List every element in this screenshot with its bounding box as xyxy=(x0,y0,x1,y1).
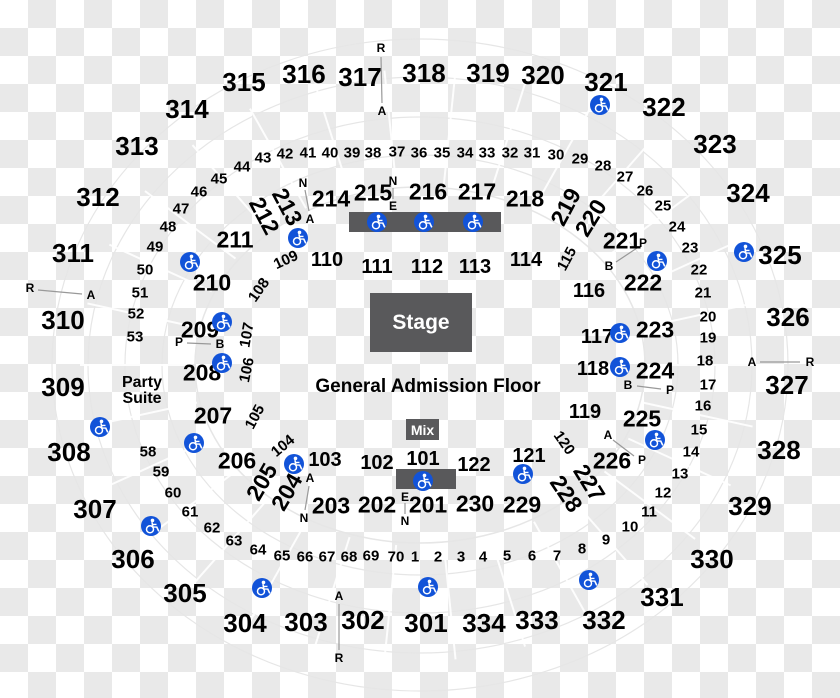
row-number-35: 35 xyxy=(434,146,451,161)
row-number-37: 37 xyxy=(389,145,406,160)
row-number-27: 27 xyxy=(617,170,634,185)
section-300-325[interactable]: 325 xyxy=(758,242,801,268)
section-300-308[interactable]: 308 xyxy=(47,439,90,465)
row-number-38: 38 xyxy=(365,146,382,161)
row-extent-letter-R: R xyxy=(377,42,386,54)
row-number-36: 36 xyxy=(411,146,428,161)
row-number-3: 3 xyxy=(457,550,465,565)
section-300-316[interactable]: 316 xyxy=(282,61,325,87)
general-admission-floor-label: General Admission Floor xyxy=(315,376,540,398)
section-200-203[interactable]: 203 xyxy=(312,495,350,518)
row-number-48: 48 xyxy=(160,220,177,235)
row-number-60: 60 xyxy=(165,486,182,501)
wheelchair-accessible-icon[interactable] xyxy=(180,252,200,272)
row-number-59: 59 xyxy=(153,465,170,480)
row-number-44: 44 xyxy=(234,160,251,175)
wheelchair-accessible-icon[interactable] xyxy=(590,95,610,115)
row-extent-letter-P: P xyxy=(638,454,646,466)
section-200-224[interactable]: 224 xyxy=(636,360,674,383)
mix-label: Mix xyxy=(411,423,434,437)
wheelchair-accessible-icon[interactable] xyxy=(418,577,438,597)
wheelchair-accessible-icon[interactable] xyxy=(610,323,630,343)
row-number-9: 9 xyxy=(602,533,610,548)
row-number-30: 30 xyxy=(548,148,565,163)
wheelchair-accessible-icon[interactable] xyxy=(414,212,434,232)
section-100-101[interactable]: 101 xyxy=(406,449,439,469)
row-number-46: 46 xyxy=(191,185,208,200)
row-extent-letter-A: A xyxy=(748,356,757,368)
section-200-230[interactable]: 230 xyxy=(456,493,494,516)
section-300-318[interactable]: 318 xyxy=(402,60,445,86)
row-number-8: 8 xyxy=(578,542,586,557)
section-100-114[interactable]: 114 xyxy=(510,250,542,270)
row-number-47: 47 xyxy=(173,202,190,217)
row-number-51: 51 xyxy=(132,286,149,301)
section-100-113[interactable]: 113 xyxy=(459,257,491,277)
wheelchair-accessible-icon[interactable] xyxy=(252,578,272,598)
section-300-307[interactable]: 307 xyxy=(73,496,116,522)
row-number-29: 29 xyxy=(572,152,589,167)
wheelchair-accessible-icon[interactable] xyxy=(288,228,308,248)
section-200-217[interactable]: 217 xyxy=(458,181,496,204)
section-300-328[interactable]: 328 xyxy=(757,437,800,463)
section-300-301[interactable]: 301 xyxy=(404,610,447,636)
section-300-303[interactable]: 303 xyxy=(284,609,327,635)
section-300-306[interactable]: 306 xyxy=(111,546,154,572)
section-100-106[interactable]: 106 xyxy=(237,356,257,384)
row-number-64: 64 xyxy=(250,543,267,558)
row-extent-letter-R: R xyxy=(335,652,344,664)
row-number-62: 62 xyxy=(204,521,221,536)
section-200-218[interactable]: 218 xyxy=(506,188,544,211)
section-200-206[interactable]: 206 xyxy=(218,450,256,473)
section-200-214[interactable]: 214 xyxy=(312,188,350,211)
row-number-4: 4 xyxy=(479,550,487,565)
section-300-332[interactable]: 332 xyxy=(582,607,625,633)
section-100-102[interactable]: 102 xyxy=(360,453,393,473)
wheelchair-accessible-icon[interactable] xyxy=(579,570,599,590)
section-300-313[interactable]: 313 xyxy=(115,133,158,159)
section-100-121[interactable]: 121 xyxy=(512,446,545,466)
section-100-122[interactable]: 122 xyxy=(457,455,490,475)
row-number-26: 26 xyxy=(637,184,654,199)
row-number-15: 15 xyxy=(691,423,708,438)
row-number-42: 42 xyxy=(277,147,294,162)
wheelchair-accessible-icon[interactable] xyxy=(647,251,667,271)
row-number-63: 63 xyxy=(226,534,243,549)
section-300-314[interactable]: 314 xyxy=(165,96,208,122)
section-100-109[interactable]: 109 xyxy=(271,248,300,272)
seat-map-canvas: Stage Mix General Admission Floor Party … xyxy=(0,0,840,698)
row-extent-letter-P: P xyxy=(666,384,674,396)
row-extent-letter-A: A xyxy=(87,289,96,301)
section-100-111[interactable]: 111 xyxy=(361,257,392,277)
row-number-24: 24 xyxy=(669,220,686,235)
row-number-69: 69 xyxy=(363,549,380,564)
section-200-225[interactable]: 225 xyxy=(623,408,661,431)
section-200-221[interactable]: 221 xyxy=(603,230,641,253)
row-extent-letter-A: A xyxy=(604,429,613,441)
row-number-50: 50 xyxy=(137,263,154,278)
wheelchair-accessible-icon[interactable] xyxy=(90,417,110,437)
section-200-222[interactable]: 222 xyxy=(624,272,662,295)
section-100-110[interactable]: 110 xyxy=(311,250,343,270)
row-number-7: 7 xyxy=(553,549,561,564)
section-300-330[interactable]: 330 xyxy=(690,546,733,572)
party-suite-line2: Suite xyxy=(122,390,161,407)
row-number-39: 39 xyxy=(344,146,361,161)
row-number-70: 70 xyxy=(388,550,405,565)
row-number-11: 11 xyxy=(641,505,657,520)
wheelchair-accessible-icon[interactable] xyxy=(284,454,304,474)
row-number-21: 21 xyxy=(695,286,712,301)
row-number-41: 41 xyxy=(300,146,317,161)
row-number-1: 1 xyxy=(411,550,419,565)
row-number-5: 5 xyxy=(503,549,511,564)
section-300-305[interactable]: 305 xyxy=(163,580,206,606)
wheelchair-accessible-icon[interactable] xyxy=(184,433,204,453)
section-100-117[interactable]: 117 xyxy=(581,327,613,347)
row-number-49: 49 xyxy=(147,240,164,255)
row-number-17: 17 xyxy=(700,378,717,393)
row-number-20: 20 xyxy=(700,310,717,325)
row-number-65: 65 xyxy=(274,549,291,564)
section-300-322[interactable]: 322 xyxy=(642,94,685,120)
section-200-210[interactable]: 210 xyxy=(193,272,231,295)
section-100-116[interactable]: 116 xyxy=(573,281,605,301)
party-suite-line1: Party xyxy=(122,374,162,391)
row-number-10: 10 xyxy=(622,520,639,535)
row-number-6: 6 xyxy=(528,549,536,564)
row-number-68: 68 xyxy=(341,550,358,565)
row-extent-letter-B: B xyxy=(624,379,633,391)
row-number-12: 12 xyxy=(655,486,672,501)
section-200-229[interactable]: 229 xyxy=(503,494,541,517)
row-number-23: 23 xyxy=(682,241,699,256)
section-100-107[interactable]: 107 xyxy=(237,321,256,348)
section-300-317[interactable]: 317 xyxy=(338,64,381,90)
wheelchair-accessible-icon[interactable] xyxy=(141,516,161,536)
section-200-216[interactable]: 216 xyxy=(409,181,447,204)
section-200-215[interactable]: 215 xyxy=(354,182,392,205)
row-number-67: 67 xyxy=(319,550,336,565)
section-300-329[interactable]: 329 xyxy=(728,493,771,519)
section-300-309[interactable]: 309 xyxy=(41,374,84,400)
mix-booth: Mix xyxy=(406,419,439,440)
section-300-311[interactable]: 311 xyxy=(52,240,94,266)
section-200-201[interactable]: 201 xyxy=(409,494,447,517)
section-300-304[interactable]: 304 xyxy=(223,610,266,636)
row-number-58: 58 xyxy=(140,445,157,460)
section-300-334[interactable]: 334 xyxy=(462,610,505,636)
wheelchair-accessible-icon[interactable] xyxy=(367,212,387,232)
section-300-331[interactable]: 331 xyxy=(640,584,683,610)
row-number-16: 16 xyxy=(695,399,712,414)
section-200-223[interactable]: 223 xyxy=(636,319,674,342)
section-100-103[interactable]: 103 xyxy=(308,450,341,470)
wheelchair-accessible-icon[interactable] xyxy=(212,312,232,332)
row-number-25: 25 xyxy=(655,199,672,214)
section-100-118[interactable]: 118 xyxy=(577,359,609,379)
row-number-34: 34 xyxy=(457,146,474,161)
section-200-211[interactable]: 211 xyxy=(216,229,253,252)
row-number-40: 40 xyxy=(322,146,339,161)
section-100-112[interactable]: 112 xyxy=(411,257,443,277)
row-number-33: 33 xyxy=(479,146,496,161)
row-number-31: 31 xyxy=(524,146,541,161)
section-100-119[interactable]: 119 xyxy=(569,402,601,422)
section-300-319[interactable]: 319 xyxy=(466,60,509,86)
wheelchair-accessible-icon[interactable] xyxy=(212,353,232,373)
wheelchair-accessible-icon[interactable] xyxy=(610,357,630,377)
section-100-105[interactable]: 105 xyxy=(243,402,268,431)
row-number-19: 19 xyxy=(700,331,717,346)
row-number-61: 61 xyxy=(182,505,199,520)
row-number-45: 45 xyxy=(211,172,228,187)
wheelchair-accessible-icon[interactable] xyxy=(413,471,433,491)
row-number-43: 43 xyxy=(255,151,272,166)
row-number-22: 22 xyxy=(691,263,708,278)
row-number-66: 66 xyxy=(297,550,314,565)
section-300-326[interactable]: 326 xyxy=(766,304,809,330)
row-number-52: 52 xyxy=(128,307,145,322)
wheelchair-accessible-icon[interactable] xyxy=(463,212,483,232)
section-300-310[interactable]: 310 xyxy=(41,307,84,333)
stage-area: Stage xyxy=(370,293,472,352)
stage-label: Stage xyxy=(392,312,449,333)
row-extent-letter-N: N xyxy=(300,512,309,524)
row-extent-letter-B: B xyxy=(605,260,614,272)
row-extent-letter-R: R xyxy=(26,282,35,294)
wheelchair-accessible-icon[interactable] xyxy=(513,464,533,484)
section-200-207[interactable]: 207 xyxy=(194,405,232,428)
section-300-321[interactable]: 321 xyxy=(584,69,627,95)
section-300-315[interactable]: 315 xyxy=(222,69,265,95)
wheelchair-accessible-icon[interactable] xyxy=(645,430,665,450)
wheelchair-accessible-icon[interactable] xyxy=(734,242,754,262)
row-number-2: 2 xyxy=(434,550,442,565)
section-300-323[interactable]: 323 xyxy=(693,131,736,157)
row-extent-letter-A: A xyxy=(378,105,387,117)
section-300-324[interactable]: 324 xyxy=(726,180,769,206)
section-300-333[interactable]: 333 xyxy=(515,607,558,633)
row-number-14: 14 xyxy=(683,445,700,460)
row-number-28: 28 xyxy=(595,159,612,174)
row-number-53: 53 xyxy=(127,330,144,345)
row-number-13: 13 xyxy=(672,467,689,482)
section-100-108[interactable]: 108 xyxy=(246,275,273,304)
section-200-226[interactable]: 226 xyxy=(593,450,631,473)
row-extent-letter-N: N xyxy=(299,177,308,189)
row-number-32: 32 xyxy=(502,146,519,161)
section-300-320[interactable]: 320 xyxy=(521,62,564,88)
row-number-18: 18 xyxy=(697,354,714,369)
row-extent-letter-A: A xyxy=(335,590,344,602)
row-extent-letter-E: E xyxy=(401,491,409,503)
section-300-302[interactable]: 302 xyxy=(341,607,384,633)
section-100-120[interactable]: 120 xyxy=(551,428,578,457)
row-extent-letter-R: R xyxy=(806,356,815,368)
section-200-202[interactable]: 202 xyxy=(358,494,396,517)
section-300-312[interactable]: 312 xyxy=(76,184,119,210)
section-100-115[interactable]: 115 xyxy=(555,245,580,273)
party-suite-label: Party Suite xyxy=(122,375,162,407)
section-300-327[interactable]: 327 xyxy=(765,372,808,398)
